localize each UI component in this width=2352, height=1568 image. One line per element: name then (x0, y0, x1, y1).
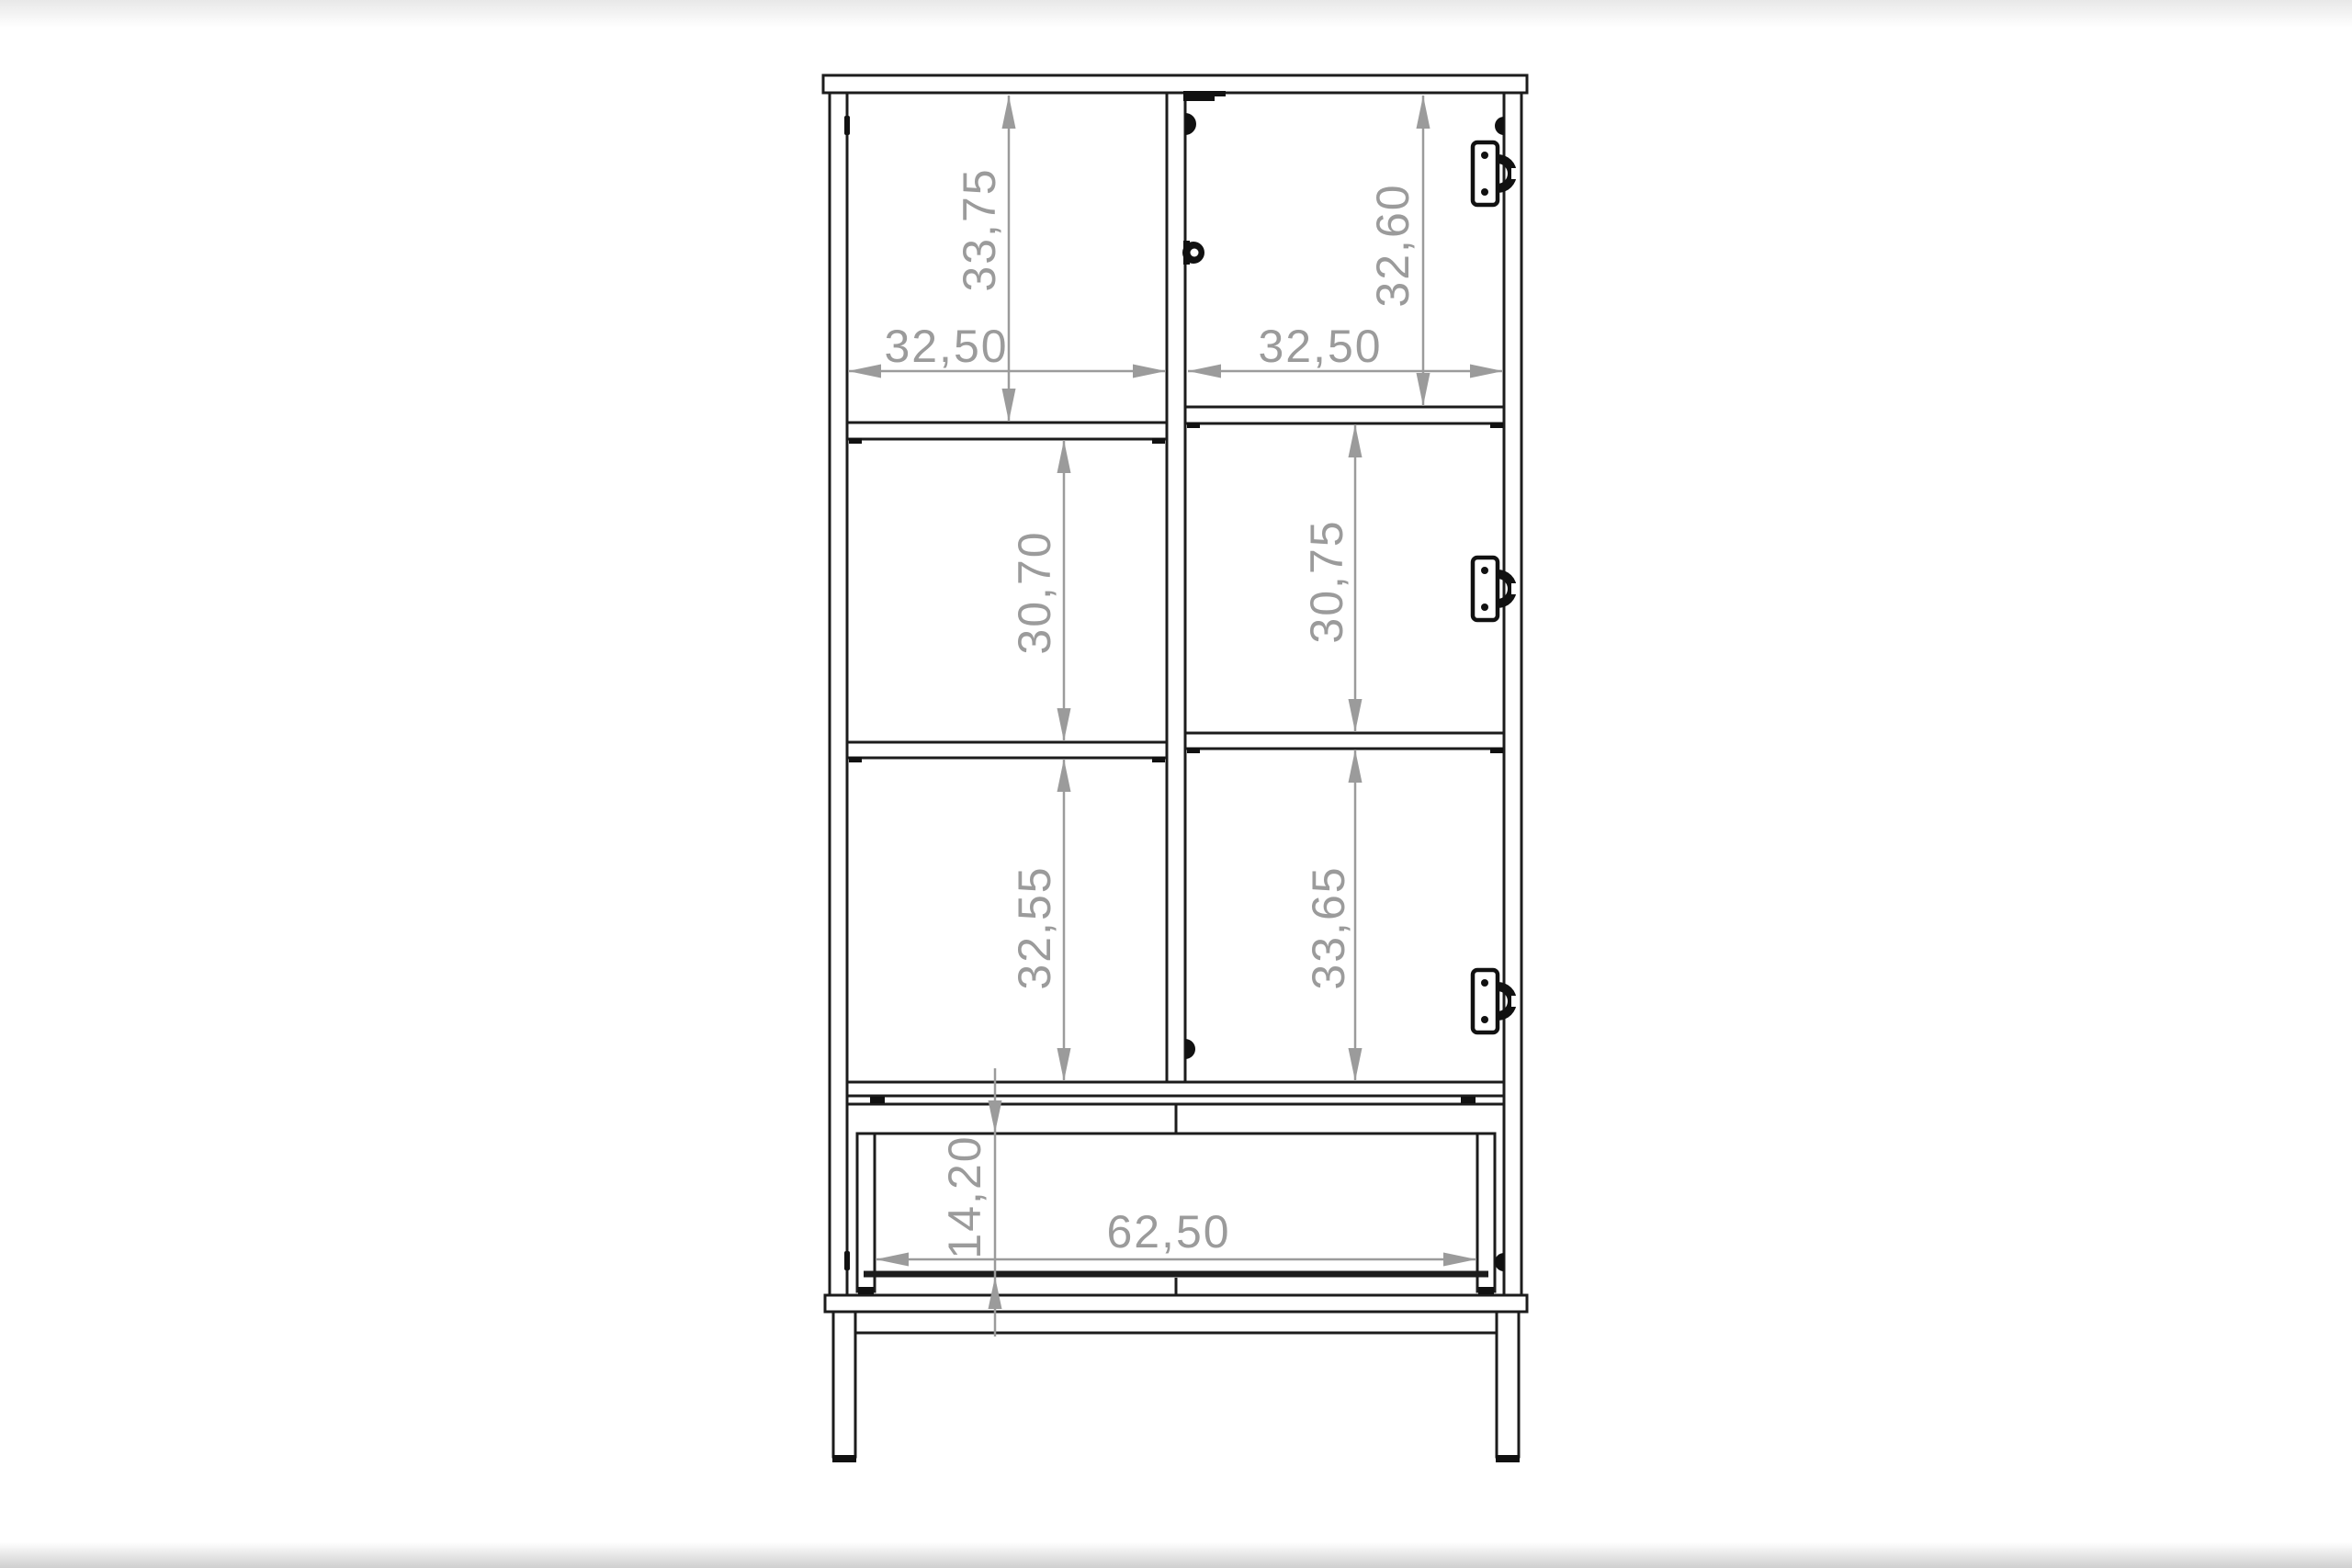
dimension-middle-right-height: 30,75 (1301, 424, 1355, 732)
dimension-label-middle-left-height: 30,70 (1009, 530, 1060, 654)
dimension-label-lower-left-height: 32,55 (1009, 865, 1060, 989)
dimension-top-left-height: 33,75 (954, 96, 1009, 422)
hinge-icon-middle (1473, 558, 1519, 620)
shelf-support-mark (1490, 748, 1503, 753)
dimension-label-right-width: 32,50 (1258, 321, 1382, 372)
dimension-label-middle-right-height: 30,75 (1301, 519, 1352, 643)
shelf-right-upper (1185, 407, 1504, 423)
dimension-label-drawer-width: 62,50 (1106, 1206, 1230, 1258)
base-leg-left (833, 1312, 855, 1457)
shelf-support-mark (1152, 757, 1165, 762)
leg-foot-left (832, 1455, 856, 1462)
hinges (1473, 142, 1519, 1032)
bottom-shelf-support-mark-left (870, 1097, 885, 1103)
shelf-support-mark (849, 438, 862, 444)
dimension-annotations: 33,75 32,60 32,50 32,50 30,70 30,75 32,5… (848, 96, 1503, 1337)
leg-foot-right (1496, 1455, 1520, 1462)
drawer-runner-foot-left (858, 1287, 874, 1294)
shelf-left-lower (847, 742, 1167, 758)
dimension-label-top-right-height: 32,60 (1367, 183, 1419, 307)
left-door-mount-mark-top (844, 116, 850, 135)
right-side-panel (1504, 93, 1521, 1295)
dimension-right-width: 32,50 (1188, 321, 1503, 372)
shelf-support-mark (849, 757, 862, 762)
shelf-support-mark (1152, 438, 1165, 444)
shelf-left-upper (847, 423, 1167, 439)
hinge-icon-bottom (1473, 970, 1519, 1032)
shelf-support-mark (1187, 748, 1200, 753)
page: { "page": { "background_color": "#ffffff… (0, 0, 2352, 1568)
technical-drawing: 33,75 32,60 32,50 32,50 30,70 30,75 32,5… (0, 0, 2352, 1568)
drawer-runner-foot-right (1478, 1287, 1494, 1294)
dimension-left-width: 32,50 (848, 321, 1166, 372)
dimension-lower-left-height: 32,55 (1009, 759, 1064, 1081)
drawer-runner-left (857, 1134, 875, 1292)
top-panel (823, 75, 1527, 93)
left-door-mount-mark-bottom (844, 1251, 850, 1270)
shelf-support-mark (1187, 423, 1200, 428)
dimension-lower-right-height: 33,65 (1303, 750, 1355, 1081)
shelf-support-mark (1490, 423, 1503, 428)
bottom-panel (825, 1295, 1527, 1312)
divider-mount-mark-top (1185, 113, 1196, 135)
divider-bracket-icon (1182, 241, 1204, 265)
door-top-mount-mark (1183, 91, 1226, 101)
bottom-shelf (847, 1082, 1504, 1096)
arrow-up-icon (989, 1277, 1002, 1309)
center-divider (1167, 93, 1185, 1082)
arrow-down-icon (989, 1100, 1002, 1133)
dimension-middle-left-height: 30,70 (1009, 440, 1064, 741)
divider-mount-mark-bottom (1185, 1039, 1195, 1059)
left-side-panel (830, 93, 847, 1295)
base-leg-right (1497, 1312, 1519, 1457)
hinge-icon-top (1473, 142, 1519, 205)
dimension-label-drawer-height: 14,20 (939, 1134, 990, 1258)
dimension-label-lower-right-height: 33,65 (1303, 865, 1354, 989)
shelf-right-lower (1185, 733, 1504, 749)
bottom-shelf-support-mark-right (1461, 1097, 1476, 1103)
drawer-runner-right (1477, 1134, 1495, 1292)
dimension-label-top-left-height: 33,75 (954, 167, 1005, 291)
dimension-label-left-width: 32,50 (884, 321, 1008, 372)
right-door-mount-mark-top (1495, 117, 1504, 135)
